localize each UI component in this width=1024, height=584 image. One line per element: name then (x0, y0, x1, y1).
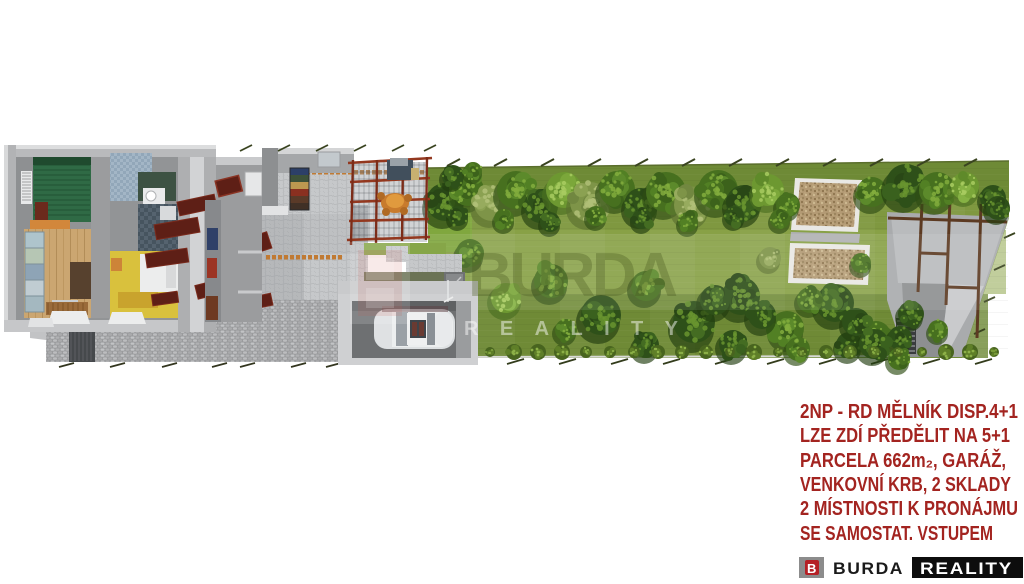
svg-text:VENKOVNÍ KRB, 2 SKLADY: VENKOVNÍ KRB, 2 SKLADY (800, 473, 1011, 496)
svg-text:LZE ZDÍ PŘEDĚLIT NA 5+1: LZE ZDÍ PŘEDĚLIT NA 5+1 (800, 423, 1010, 447)
svg-text:2 MÍSTNOSTI K PRONÁJMU: 2 MÍSTNOSTI K PRONÁJMU (800, 497, 1018, 520)
svg-text:SE SAMOSTAT. VSTUPEM: SE SAMOSTAT. VSTUPEM (800, 522, 993, 545)
svg-text:B: B (807, 561, 816, 576)
svg-text:REALITY: REALITY (920, 559, 1013, 578)
svg-text:2NP - RD MĚLNÍK DISP.4+1: 2NP - RD MĚLNÍK DISP.4+1 (800, 399, 1018, 423)
svg-text:BURDA: BURDA (468, 241, 680, 310)
svg-text:PARCELA 662m₂, GARÁŽ,: PARCELA 662m₂, GARÁŽ, (800, 448, 1006, 472)
svg-text:BURDA: BURDA (833, 559, 904, 578)
